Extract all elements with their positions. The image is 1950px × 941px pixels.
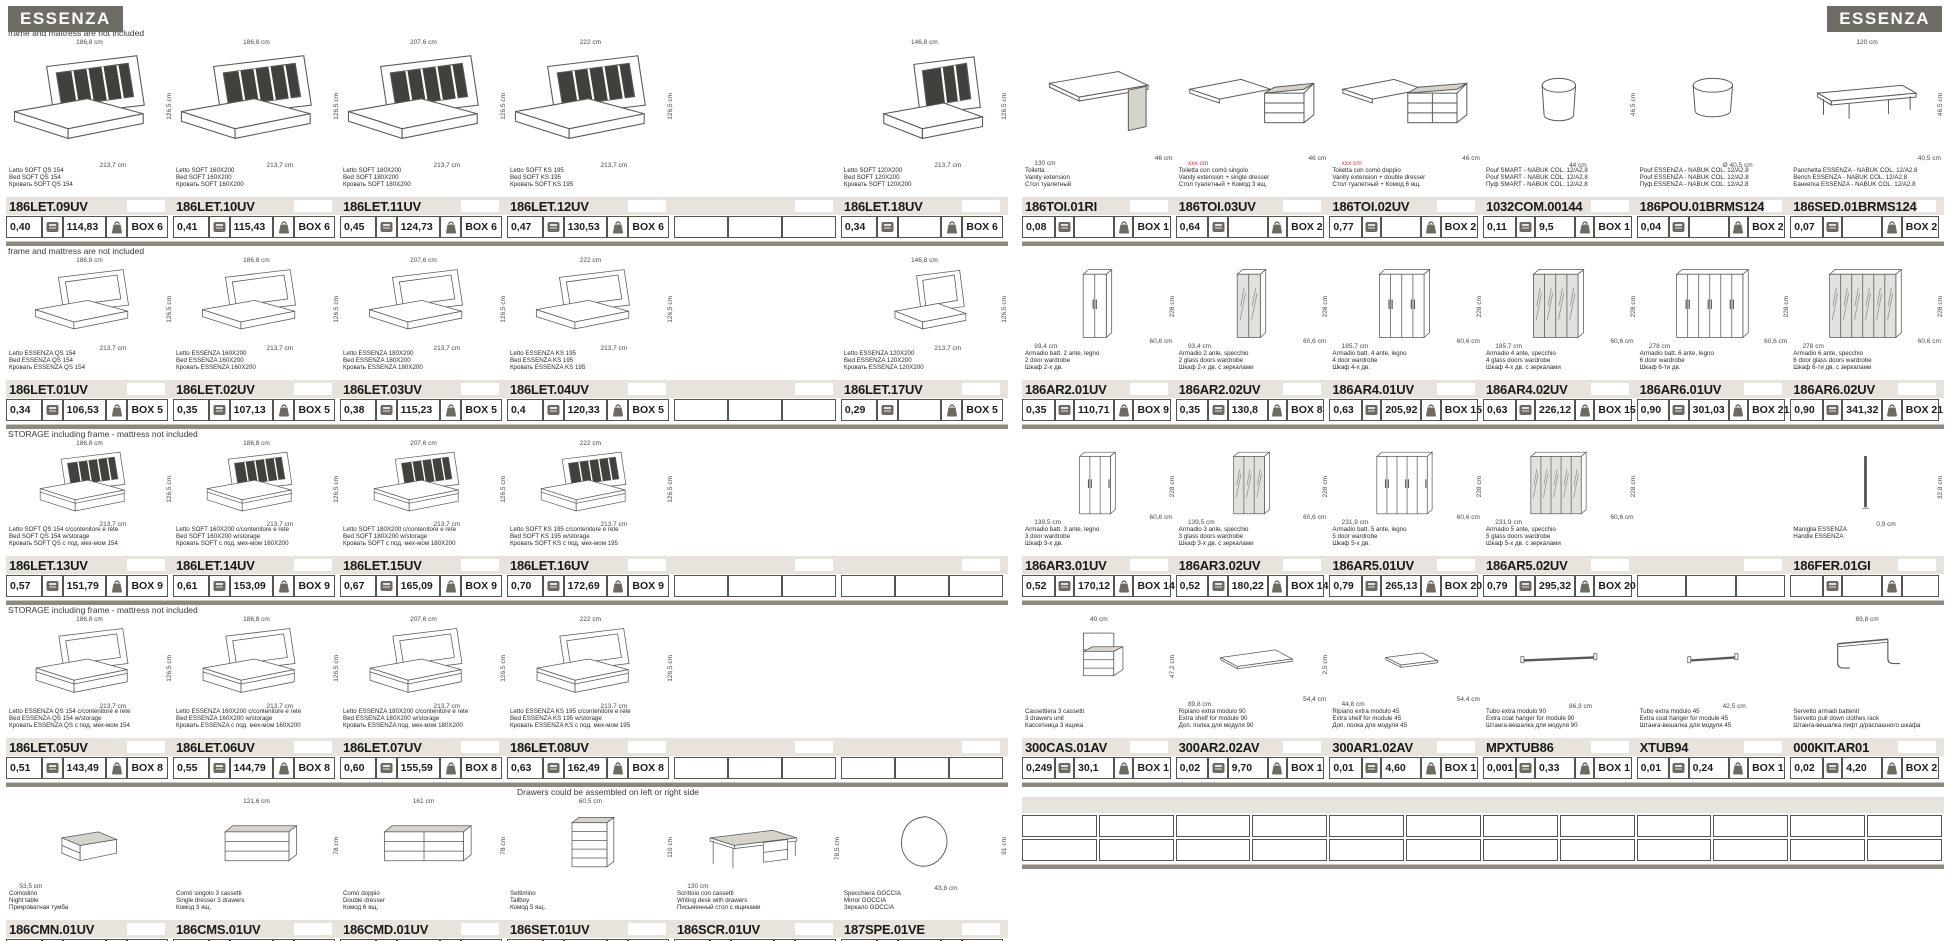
empty-value-box	[782, 216, 836, 238]
product-label	[674, 350, 841, 380]
weight-value	[1842, 575, 1882, 597]
code-cell	[674, 738, 841, 756]
product-code: MPXTUB86	[1483, 740, 1554, 755]
empty-value-box	[782, 575, 836, 597]
label-line: Letto ESSENZA 160X200 c/contenitore e re…	[176, 708, 340, 715]
empty-value-box	[1686, 575, 1736, 597]
volume-cube-icon	[1208, 399, 1227, 421]
label-line: Letto ESSENZA QS 154	[9, 350, 173, 357]
weight-kg-icon	[440, 575, 461, 597]
dimension-label: 43,8 cm	[934, 885, 957, 892]
volume-cube-icon	[543, 575, 564, 597]
product-row: STORAGE including frame - mattress not i…	[6, 605, 1008, 787]
box-count: BOX 5	[294, 399, 334, 421]
label-line: Bed ESSENZA 160X200 w/storage	[176, 715, 340, 722]
product-code: 186SCR.01UV	[674, 922, 760, 937]
label-strip: Letto ESSENZA QS 154Bed ESSENZA QS 154Кр…	[6, 350, 1008, 380]
code-cell: 300AR2.02AV	[1176, 738, 1330, 756]
label-line: Кровать SOFT KS с под. мех-мом 195	[510, 540, 674, 547]
empty-cell	[1637, 815, 1712, 837]
code-notch	[1130, 200, 1168, 212]
dimension-label: 60,6 cm	[1918, 338, 1941, 345]
value-cell: 0,35110,71BOX 9	[1022, 399, 1176, 421]
product-label: Comò doppioDouble dresserКомод 6 ящ.	[340, 890, 507, 920]
weight-value: 0,33	[1535, 757, 1575, 779]
label-strip: Letto ESSENZA QS 154 c/contenitore e ret…	[6, 708, 1008, 738]
weight-kg-icon	[1268, 575, 1287, 597]
product-code: 1032COM.00144	[1483, 199, 1582, 214]
dimension-label: 60,5 cm	[579, 798, 602, 805]
value-cell: 0,52170,12BOX 14	[1022, 575, 1176, 597]
box-count: BOX 6	[628, 216, 668, 238]
product-label	[1637, 526, 1791, 556]
weight-value: 124,73	[397, 216, 441, 238]
label-line: Кровать SOFT 120X200	[844, 181, 1008, 188]
product-diagram-cell: 146,8 cm126,5 cm213,7 cm	[841, 39, 1008, 167]
code-notch	[1764, 200, 1782, 212]
weight-kg-icon	[607, 399, 628, 421]
label-line: Pouf ESSENZA - NABUK COL. 12/A2.8	[1640, 174, 1791, 181]
box-count: BOX 5	[461, 399, 501, 421]
product-code: 186AR6.01UV	[1637, 382, 1722, 397]
value-cell: 0,04BOX 2	[1637, 216, 1791, 238]
volume-value: 0,63	[507, 757, 543, 779]
diagram-strip: 186,8 cm126,5 cm213,7 cm186,8 cm126,5 cm…	[6, 39, 1008, 167]
value-cell: 0,41115,43BOX 6	[173, 216, 340, 238]
volume-value: 0,01	[1329, 757, 1362, 779]
label-line: Bed ESSENZA 160X200	[176, 357, 340, 364]
dimension-label: 207,6 cm	[410, 257, 437, 264]
code-notch	[1130, 741, 1168, 753]
box-count: BOX 15	[1594, 399, 1631, 421]
product-diagram-cell	[674, 616, 841, 708]
value-cell: 0,70172,69BOX 9	[507, 575, 674, 597]
dimension-label: 228 cm	[1322, 296, 1329, 317]
dimension-label: 126,5 cm	[500, 93, 507, 120]
nightstand-diagram	[8, 806, 169, 882]
code-cell: 300CAS.01AV	[1022, 738, 1176, 756]
weight-value	[1228, 216, 1268, 238]
weight-value: 162,49	[564, 757, 608, 779]
dimension-label: 47,2 cm	[1169, 655, 1176, 678]
box-count: BOX 8	[461, 757, 501, 779]
product-code: 186LET.06UV	[173, 740, 255, 755]
weight-value: 130,53	[564, 216, 608, 238]
product-label: Armadio batt. 2 ante, legno2 door wardro…	[1022, 350, 1176, 380]
diagram-strip: 40 cm47,2 cm2,5 cm89,8 cm54,4 cm44,8 cm5…	[1022, 616, 1944, 708]
dimension-label: 46 cm	[1462, 155, 1480, 162]
dimension-label: 110 cm	[667, 837, 674, 858]
empty-cell	[1560, 839, 1635, 861]
weight-kg-icon	[941, 399, 962, 421]
dimension-label: 126,5 cm	[166, 296, 173, 323]
dimension-label: 53,5 cm	[19, 883, 42, 890]
product-diagram-cell: 121,6 cm78 cm	[173, 798, 340, 890]
value-cell: 0,24930,1BOX 1	[1022, 757, 1176, 779]
dimension-label: 278 cm	[1649, 343, 1670, 350]
product-diagram-cell: 228 cm93,4 cm60,6 cm	[1022, 257, 1176, 350]
product-diagram-cell: 120 cm40,5 cm46,5 cm	[1790, 39, 1944, 167]
wardrobe-diagram	[1024, 448, 1172, 518]
product-label: Letto ESSENZA 160X200 c/contenitore e re…	[173, 708, 340, 738]
empty-cell	[1329, 815, 1404, 837]
label-line: Night table	[9, 897, 173, 904]
dimension-label: 32,8 cm	[1937, 476, 1944, 499]
desk-diagram	[676, 806, 837, 882]
product-label: Letto ESSENZA 180X200Bed ESSENZA 180X200…	[340, 350, 507, 380]
values-strip: 0,40114,83BOX 60,41115,43BOX 60,45124,73…	[6, 216, 1008, 238]
volume-cube-icon	[877, 216, 898, 238]
weight-kg-icon	[607, 575, 628, 597]
product-row: 228 cm139,5 cm60,6 cm228 cm139,5 cm60,6 …	[1022, 429, 1944, 605]
label-line: Комод 6 ящ.	[343, 904, 507, 911]
volume-value: 0,40	[6, 216, 42, 238]
product-diagram-cell: 44 cm46,5 cm	[1483, 39, 1637, 167]
wardrobe-diagram	[1024, 265, 1172, 342]
value-cell: 0,63162,49BOX 8	[507, 757, 674, 779]
pouf-diagram	[1639, 47, 1787, 159]
code-notch	[1283, 383, 1321, 395]
dimension-label: 213,7 cm	[100, 162, 127, 169]
page-right: 130 cm46 cmxxx cm46 cmxxx cm46 cm44 cm46…	[1022, 28, 1944, 941]
row-note: STORAGE including frame - mattress not i…	[8, 429, 198, 439]
product-diagram-cell	[674, 39, 841, 167]
code-cell: 186LET.15UV	[340, 556, 507, 574]
product-row	[1022, 787, 1944, 941]
label-line: Кровать SOFT KS 195	[510, 181, 674, 188]
weight-kg-icon	[1114, 757, 1133, 779]
code-cell: 186LET.07UV	[340, 738, 507, 756]
vanitydresser-diagram	[1178, 47, 1326, 159]
product-code: 186LET.11UV	[340, 199, 421, 214]
code-notch	[962, 741, 1000, 753]
label-line: 5 door wardrobe	[1332, 533, 1483, 540]
product-code: 186LET.18UV	[841, 199, 923, 214]
code-notch	[962, 383, 1000, 395]
weight-value: 144,79	[230, 757, 274, 779]
volume-cube-icon	[1362, 216, 1381, 238]
diagram-strip: 186,8 cm126,5 cm213,7 cm186,8 cm126,5 cm…	[6, 257, 1008, 350]
box-count: BOX 1	[1133, 216, 1170, 238]
dimension-label: 93,4 cm	[1188, 343, 1211, 350]
dimension-label: 60,6 cm	[1303, 338, 1326, 345]
product-code: 186CMS.01UV	[173, 922, 261, 937]
label-line: Armadio batt. 2 ante, legno	[1025, 350, 1176, 357]
weight-kg-icon	[1575, 757, 1594, 779]
box-count: BOX 5	[628, 399, 668, 421]
code-notch	[1591, 559, 1629, 571]
dimension-label: 126,5 cm	[333, 296, 340, 323]
product-code: 186LET.17UV	[841, 382, 923, 397]
label-line: Кассетница 3 ящика	[1025, 722, 1176, 729]
label-line: 4 door wardrobe	[1332, 357, 1483, 364]
code-strip: 186LET.01UV186LET.02UV186LET.03UV186LET.…	[6, 380, 1008, 398]
weight-value: 205,92	[1381, 399, 1421, 421]
product-diagram-cell: 161 cm78 cm	[340, 798, 507, 890]
dimension-label: 213,7 cm	[266, 162, 293, 169]
label-line: Bed SOFT 160X200 w/storage	[176, 533, 340, 540]
product-label: Ripiano extra modulo 45Extra shelf for m…	[1329, 708, 1483, 738]
value-cell: 0,63205,92BOX 15	[1329, 399, 1483, 421]
weight-value	[898, 399, 942, 421]
product-code: 186CMN.01UV	[6, 922, 94, 937]
product-label: Letto SOFT 180X200 c/contenitore e reteB…	[340, 526, 507, 556]
dimension-label: 60,6 cm	[1764, 338, 1787, 345]
label-line: Штанга-вешалка для модуля 45	[1640, 722, 1791, 729]
code-cell	[674, 380, 841, 398]
weight-kg-icon	[1882, 575, 1901, 597]
label-line: Extra shelf for module 45	[1332, 715, 1483, 722]
product-label	[674, 526, 841, 556]
label-line: Пуф ESSENZA - NABUK COL. 12/A2.8	[1640, 181, 1791, 188]
empty-value-box	[949, 575, 1003, 597]
weight-value: 151,79	[63, 575, 107, 597]
label-line: Vanity extension + double dresser	[1332, 174, 1483, 181]
label-line: Доп. полка для модуля 45	[1332, 722, 1483, 729]
label-line: Vanity extension + single dresser	[1179, 174, 1330, 181]
weight-value: 143,49	[63, 757, 107, 779]
wardrobe-diagram	[1639, 265, 1787, 342]
dimension-label: 93,4 cm	[1034, 343, 1057, 350]
volume-value: 0,63	[1329, 399, 1362, 421]
volume-cube-icon	[209, 399, 230, 421]
rod-diagram	[1485, 624, 1633, 700]
label-line: Panchetta ESSENZA - NABUK COL. 12/A2.8	[1793, 167, 1944, 174]
product-code: 186AR5.02UV	[1483, 558, 1568, 573]
label-line: Bed SOFT KS 195	[510, 174, 674, 181]
value-cell: 0,90301,03BOX 21	[1637, 399, 1791, 421]
product-label: Armadio 4 ante, specchio4 glass doors wa…	[1483, 350, 1637, 380]
label-line: Tubo extra modulo 45	[1640, 708, 1791, 715]
weight-kg-icon	[440, 757, 461, 779]
label-line: 3 door wardrobe	[1025, 533, 1176, 540]
product-label: Ripiano extra modulo 90Extra shelf for m…	[1176, 708, 1330, 738]
code-cell: 186AR2.01UV	[1022, 380, 1176, 398]
product-label	[841, 708, 1008, 738]
dimension-label: 54,4 cm	[1457, 696, 1480, 703]
box-count: BOX 21	[1748, 399, 1785, 421]
box-count: BOX 8	[1287, 399, 1324, 421]
product-label: Armadio batt. 3 ante, legno3 door wardro…	[1022, 526, 1176, 556]
weight-value: 120,33	[564, 399, 608, 421]
volume-value: 0,79	[1483, 575, 1516, 597]
code-cell: 186LET.01UV	[6, 380, 173, 398]
box-count: BOX 2	[1287, 216, 1324, 238]
dimension-label: 44,8 cm	[1342, 701, 1365, 708]
dimension-label: 146,8 cm	[911, 257, 938, 264]
weight-kg-icon	[106, 216, 127, 238]
product-code: 186SET.01UV	[507, 922, 589, 937]
values-strip: 0,35110,71BOX 90,35130,8BOX 80,63205,92B…	[1022, 399, 1944, 421]
code-notch	[294, 559, 332, 571]
value-cell: 0,79295,32BOX 20	[1483, 575, 1637, 597]
dimension-label: 126,5 cm	[667, 655, 674, 682]
code-cell: 186LET.18UV	[841, 197, 1008, 215]
empty-cell	[1713, 815, 1788, 837]
dimension-label: 228 cm	[1169, 296, 1176, 317]
code-cell: 186SCR.01UV	[674, 920, 841, 938]
product-label: Servetto armadi battentiServetto pull do…	[1790, 708, 1944, 738]
weight-kg-icon	[1575, 216, 1594, 238]
volume-value: 0,77	[1329, 216, 1362, 238]
volume-cube-icon	[209, 216, 230, 238]
volume-cube-icon	[376, 216, 397, 238]
product-label	[674, 167, 841, 197]
code-cell: 186SED.01BRMS124	[1790, 197, 1944, 215]
value-cell: 0,64BOX 2	[1176, 216, 1330, 238]
product-diagram-cell: 130 cm78,5 cm	[674, 798, 841, 890]
label-line: Letto ESSENZA 120X200	[844, 350, 1008, 357]
label-line: Шкаф 3-х дв.	[1025, 540, 1176, 547]
label-line: Letto SOFT 160X200	[176, 167, 340, 174]
dimension-label: 60,6 cm	[1303, 514, 1326, 521]
product-code: XTUB94	[1637, 740, 1689, 755]
dimension-label: 89,8 cm	[1856, 616, 1879, 623]
value-cell: 0,60155,59BOX 8	[340, 757, 507, 779]
dimension-label: 78,5 cm	[834, 837, 841, 860]
label-line: Bed SOFT 180X200 w/storage	[343, 533, 507, 540]
value-cell: 0,40114,83BOX 6	[6, 216, 173, 238]
label-line: Кровать SOFT 180X200	[343, 181, 507, 188]
label-line: Кровать ESSENZA 120X200	[844, 364, 1008, 371]
wardrobe-diagram	[1485, 448, 1633, 518]
code-cell: 186SET.01UV	[507, 920, 674, 938]
label-line: Доп. полка для модуля 90	[1179, 722, 1330, 729]
code-notch	[294, 383, 332, 395]
dimension-label: 228 cm	[1630, 296, 1637, 317]
dresser-diagram	[175, 806, 336, 882]
label-line: Servetto armadi battenti	[1793, 708, 1944, 715]
empty-value-box	[841, 575, 895, 597]
code-cell: 186AR3.02UV	[1176, 556, 1330, 574]
weight-value	[1074, 216, 1114, 238]
label-line: Ripiano extra modulo 90	[1179, 708, 1330, 715]
label-line: Settimino	[510, 890, 674, 897]
product-code: 187SPE.01VE	[841, 922, 925, 937]
code-cell: 186TOI.02UV	[1329, 197, 1483, 215]
label-line: Штанга-вешалка для модуля 90	[1486, 722, 1637, 729]
product-label: Tubo extra modulo 90Extra coat hanger fo…	[1483, 708, 1637, 738]
product-diagram-cell: 207,6 cm126,5 cm213,7 cm	[340, 616, 507, 708]
product-code: 186LET.04UV	[507, 382, 589, 397]
product-label: Letto ESSENZA 160X200Bed ESSENZA 160X200…	[173, 350, 340, 380]
product-code: 186AR4.02UV	[1483, 382, 1568, 397]
code-notch	[795, 200, 833, 212]
label-line: Bed ESSENZA 180X200 w/storage	[343, 715, 507, 722]
label-line: Tallboy	[510, 897, 674, 904]
label-line: Letto SOFT QS 154	[9, 167, 173, 174]
label-line: Банкетка ESSENZA - NABUK COL. 12/A2.8	[1793, 181, 1944, 188]
label-line: Кровать SOFT 160X200	[176, 181, 340, 188]
label-line: Стол туалетный + Комод 6 ящ.	[1332, 181, 1483, 188]
weight-value: 341,32	[1842, 399, 1882, 421]
box-count: BOX 21	[1902, 399, 1939, 421]
dimension-label: 2,5 cm	[1322, 655, 1329, 675]
product-row: 130 cm46 cmxxx cm46 cmxxx cm46 cm44 cm46…	[1022, 28, 1944, 246]
volume-cube-icon	[1055, 575, 1074, 597]
code-cell	[1637, 556, 1791, 574]
code-notch	[1437, 559, 1475, 571]
weight-value	[1381, 216, 1421, 238]
weight-value	[898, 216, 942, 238]
product-diagram-cell: xxx cm46 cm	[1329, 39, 1483, 167]
value-cell	[1790, 575, 1944, 597]
code-strip: 186LET.09UV186LET.10UV186LET.11UV186LET.…	[6, 197, 1008, 215]
volume-cube-icon	[1516, 575, 1535, 597]
volume-cube-icon	[1516, 757, 1535, 779]
code-notch	[795, 923, 833, 935]
weight-kg-icon	[106, 399, 127, 421]
product-code: 186TOI.03UV	[1176, 199, 1256, 214]
label-line: Tubo extra modulo 90	[1486, 708, 1637, 715]
code-notch	[461, 741, 499, 753]
product-diagram-cell: 207,6 cm126,5 cm213,7 cm	[340, 39, 507, 167]
weight-kg-icon	[273, 757, 294, 779]
label-line: Armadio 6 ante, specchio	[1793, 350, 1944, 357]
product-diagram-cell: 32,8 cm0,9 cm	[1790, 440, 1944, 526]
value-cell: 0,52180,22BOX 14	[1176, 575, 1330, 597]
value-cell: 0,0010,33BOX 1	[1483, 757, 1637, 779]
volume-value: 0,11	[1483, 216, 1516, 238]
weight-kg-icon	[1268, 216, 1287, 238]
volume-value: 0,34	[841, 216, 877, 238]
vanity-diagram	[1024, 47, 1172, 159]
label-line: 4 glass doors wardrobe	[1486, 357, 1637, 364]
empty-cell	[1713, 839, 1788, 861]
box-count: BOX 1	[1133, 757, 1170, 779]
values-strip: 0,57151,79BOX 90,61153,09BOX 90,67165,09…	[6, 575, 1008, 597]
code-notch	[1591, 741, 1629, 753]
dimension-label: 222 cm	[580, 440, 601, 447]
value-cell: 0,010,24BOX 1	[1637, 757, 1791, 779]
label-line: Mirror GOCCIA	[844, 897, 1008, 904]
label-line: Шкаф 4-х дв. с зеркалами	[1486, 364, 1637, 371]
label-line: Letto ESSENZA 180X200	[343, 350, 507, 357]
volume-cube-icon	[877, 399, 898, 421]
weight-value: 110,71	[1074, 399, 1114, 421]
empty-cell	[1329, 839, 1404, 861]
bed-diagram	[175, 265, 336, 342]
wardrobe-diagram	[1485, 265, 1633, 342]
volume-value: 0,60	[340, 757, 376, 779]
empty-value-box	[1637, 575, 1687, 597]
wardrobe-diagram	[1331, 265, 1479, 342]
product-code: 186AR6.02UV	[1790, 382, 1875, 397]
code-notch	[1898, 559, 1936, 571]
product-label: Specchiera GOCCIAMirror GOCCIAЗеркало GO…	[841, 890, 1008, 920]
code-cell: 186AR4.02UV	[1483, 380, 1637, 398]
bed-diagram	[8, 47, 169, 159]
code-notch	[294, 741, 332, 753]
label-line: Armadio 2 ante, specchio	[1179, 350, 1330, 357]
bed-diagram	[342, 448, 503, 518]
box-count	[1902, 575, 1939, 597]
label-line: Кровать SOFT QS 154	[9, 181, 173, 188]
product-diagram-cell: 228 cm93,4 cm60,6 cm	[1176, 257, 1330, 350]
product-row: STORAGE including frame - mattress not i…	[6, 429, 1008, 605]
label-line: Кровать ESSENZA KS 195	[510, 364, 674, 371]
box-count: BOX 8	[628, 757, 668, 779]
box-count: BOX 15	[1441, 399, 1478, 421]
dimension-label: 46,5 cm	[1937, 93, 1944, 116]
empty-value-box	[782, 757, 836, 779]
weight-value: 170,12	[1074, 575, 1114, 597]
volume-cube-icon	[543, 399, 564, 421]
product-diagram-cell: 186,8 cm126,5 cm213,7 cm	[6, 616, 173, 708]
box-count: BOX 6	[461, 216, 501, 238]
value-cell	[674, 575, 841, 597]
dimension-label: 86,3 cm	[1569, 703, 1592, 710]
